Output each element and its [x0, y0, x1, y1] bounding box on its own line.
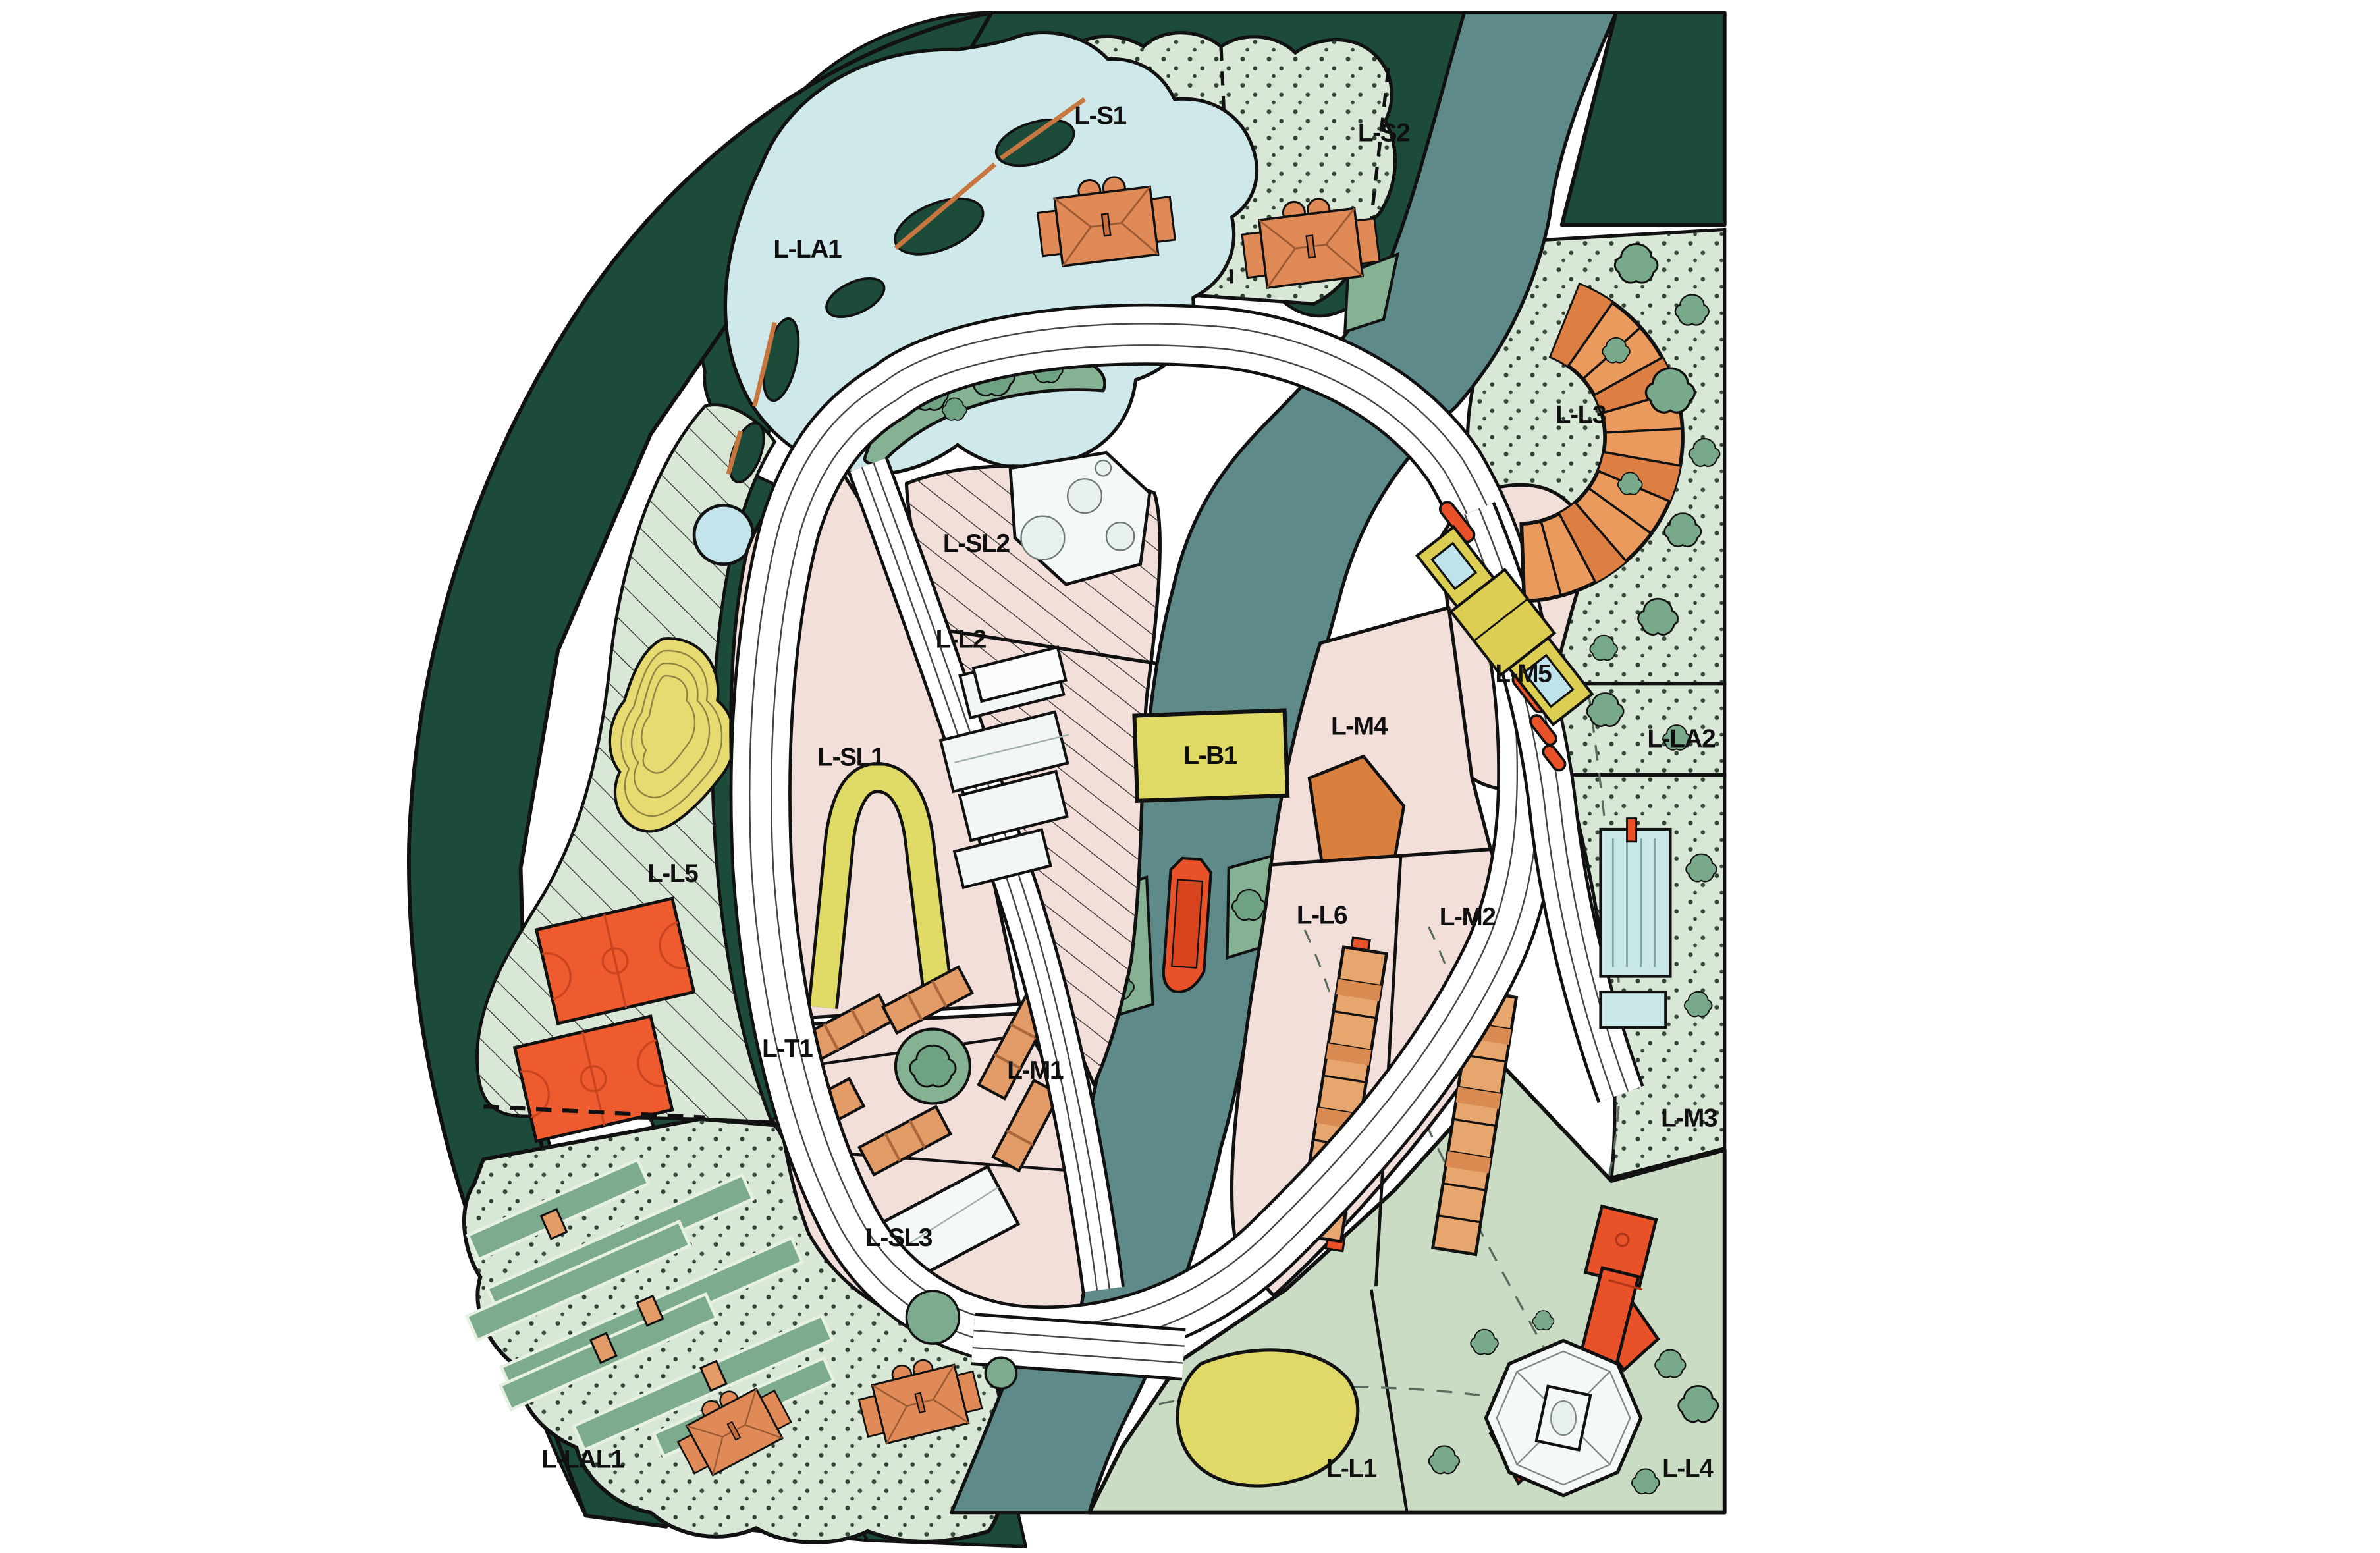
zone-label-l-l5: L-L5 — [647, 859, 698, 888]
boat — [1162, 858, 1212, 994]
zone-label-l-lal1: L-LAL1 — [541, 1445, 624, 1473]
zone-label-l-l4: L-L4 — [1662, 1454, 1714, 1483]
zone-label-l-s2: L-S2 — [1358, 119, 1410, 147]
zone-label-l-b1: L-B1 — [1183, 742, 1237, 770]
zone-label-l-m2: L-M2 — [1440, 903, 1496, 931]
zone-label-l-m3: L-M3 — [1661, 1104, 1717, 1133]
zone-label-l-l2: L-L2 — [936, 626, 987, 654]
zone-label-l-sl3: L-SL3 — [865, 1224, 933, 1252]
zone-label-l-l1: L-L1 — [1326, 1454, 1377, 1483]
zone-label-l-t1: L-T1 — [762, 1035, 813, 1063]
site-plan-map: L-S1 L-S2 L-LA1 L-L3 L-SL2 L-L2 L-M5 L-M… — [0, 0, 2380, 1553]
zone-label-l-m5: L-M5 — [1495, 659, 1552, 688]
zone-label-l-l6: L-L6 — [1297, 902, 1347, 930]
pond — [694, 505, 753, 564]
zone-label-l-la1: L-LA1 — [773, 235, 842, 263]
zone-label-l-s1: L-S1 — [1074, 101, 1126, 130]
zone-label-l-l3: L-L3 — [1555, 401, 1606, 429]
zone-label-l-m1: L-M1 — [1007, 1056, 1064, 1085]
pool — [1601, 819, 1671, 1028]
zone-label-l-sl1: L-SL1 — [817, 744, 884, 772]
zone-label-l-m4: L-M4 — [1331, 712, 1388, 740]
bottom-road — [973, 1339, 1184, 1355]
zone-label-l-sl2: L-SL2 — [943, 530, 1010, 558]
zone-label-l-la2: L-LA2 — [1647, 724, 1716, 753]
